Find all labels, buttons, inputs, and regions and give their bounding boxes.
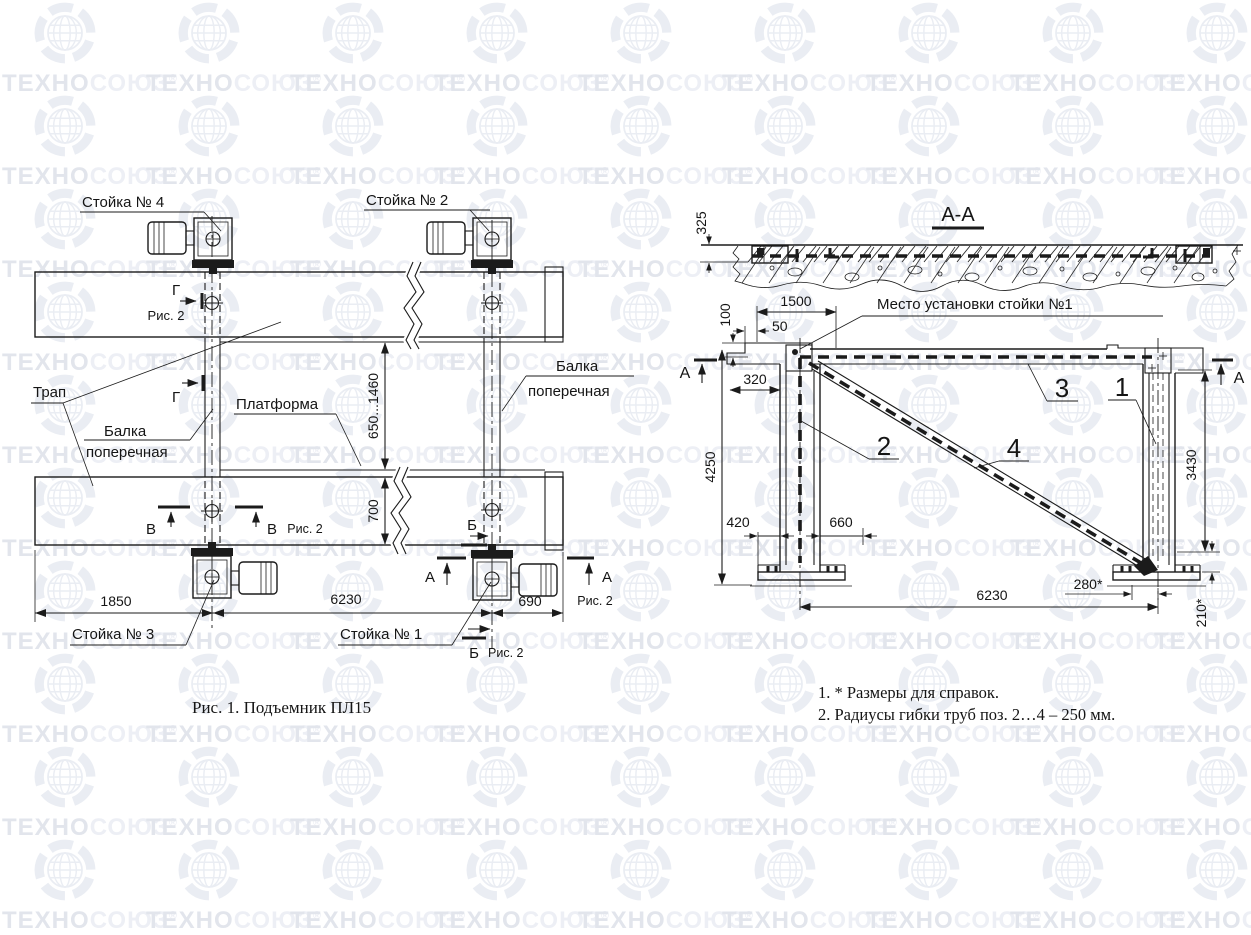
- label-install-place: Место установки стойки №1: [877, 296, 1073, 313]
- dim-center-span: 6230: [330, 591, 361, 607]
- watermark-globe-icon: [752, 0, 818, 66]
- dim-3430: 3430: [1183, 449, 1199, 480]
- dim-6230: 6230: [976, 587, 1007, 603]
- label-ramp: Трап: [33, 384, 66, 401]
- note-line-2: 2. Радиусы гибки труб поз. 2…4 – 250 мм.: [818, 704, 1115, 726]
- fig2-slab-section: А-А 325: [693, 204, 1243, 292]
- section-ref-v: Рис. 2: [287, 522, 323, 536]
- watermark-globe-icon: [608, 744, 674, 810]
- watermark-globe-icon: [1040, 744, 1106, 810]
- watermark-globe-icon: [320, 837, 386, 903]
- label-stand3: Стойка № 3: [72, 626, 154, 643]
- watermark-globe-icon: [32, 93, 98, 159]
- fig1-section-markers: Г Г Рис. 2 В В Рис. 2 Б Б Рис. 2 А А Рис…: [146, 282, 613, 662]
- watermark-globe-icon: [464, 0, 530, 66]
- watermark-text: ТЕХНОСОЮЗ®: [1154, 907, 1251, 935]
- section-ref-b: Рис. 2: [488, 646, 524, 660]
- dim-660: 660: [829, 514, 853, 530]
- watermark-globe-icon: [32, 744, 98, 810]
- watermark-globe-icon: [1184, 93, 1250, 159]
- watermark-globe-icon: [608, 0, 674, 66]
- dim-ramp-width: 700: [365, 499, 381, 523]
- dim-320: 320: [743, 371, 767, 387]
- figure-1-caption: Рис. 1. Подъемник ПЛ15: [192, 698, 371, 717]
- drawing-notes: 1. * Размеры для справок. 2. Радиусы гиб…: [818, 682, 1115, 726]
- pos-4: 4: [1007, 433, 1021, 463]
- watermark-globe-icon: [464, 93, 530, 159]
- section-letter-v2: В: [267, 521, 277, 538]
- section-ref-g: Рис. 2: [148, 308, 185, 323]
- watermark-globe-icon: [464, 744, 530, 810]
- label-stand4: Стойка № 4: [82, 194, 164, 211]
- section-letter-g1: Г: [172, 282, 180, 299]
- dim-100: 100: [717, 303, 733, 327]
- label-crossbeam-left-1: Балка: [104, 423, 147, 440]
- watermark-globe-icon: [176, 0, 242, 66]
- dim-280: 280*: [1074, 576, 1103, 592]
- watermark-globe-icon: [1040, 0, 1106, 66]
- watermark-globe-icon: [176, 837, 242, 903]
- fig1-labels: Стойка № 4 Стойка № 2 Стойка № 3 Стойка …: [31, 192, 634, 645]
- watermark-globe-icon: [1184, 0, 1250, 66]
- watermark-globe-icon: [896, 837, 962, 903]
- watermark-globe-icon: [896, 0, 962, 66]
- dim-left-span: 1850: [100, 593, 131, 609]
- watermark-globe-icon: [464, 837, 530, 903]
- section-letter-v1: В: [146, 521, 156, 538]
- watermark-globe-icon: [608, 93, 674, 159]
- watermark-globe-icon: [896, 93, 962, 159]
- watermark-globe-icon: [752, 837, 818, 903]
- fig2-frame: [727, 338, 1206, 610]
- note-line-1: 1. * Размеры для справок.: [818, 682, 1115, 704]
- fig2-title: А-А: [941, 204, 975, 226]
- section-letter-b1: Б: [467, 517, 477, 534]
- watermark-globe-icon: [752, 93, 818, 159]
- dim-210: 210*: [1193, 598, 1209, 627]
- section-ref-a: Рис. 2: [577, 594, 613, 608]
- watermark-globe-icon: [32, 837, 98, 903]
- pos-3: 3: [1055, 373, 1069, 403]
- channel-hatch: [748, 246, 1212, 262]
- label-stand1: Стойка № 1: [340, 626, 422, 643]
- label-stand2: Стойка № 2: [366, 192, 448, 209]
- dim-325: 325: [693, 211, 709, 235]
- section-letter-g2: Г: [172, 389, 180, 406]
- dim-4250: 4250: [702, 451, 718, 482]
- watermark-globe-icon: [176, 744, 242, 810]
- watermark-globe-icon: [1184, 651, 1250, 717]
- watermark-globe-icon: [320, 744, 386, 810]
- dim-right-span: 690: [518, 593, 542, 609]
- watermark-globe-icon: [1040, 93, 1106, 159]
- label-crossbeam-left-2: поперечная: [86, 444, 168, 461]
- dim-platform-gap: 650...1460: [365, 373, 381, 439]
- watermark-globe-icon: [320, 93, 386, 159]
- watermark-globe-icon: [176, 93, 242, 159]
- figure-2-section-a-a: А-А 325: [678, 195, 1245, 655]
- fig1-cross-beams: [205, 216, 500, 648]
- watermark-globe-icon: [32, 0, 98, 66]
- dim-1500: 1500: [780, 293, 811, 309]
- dim-50: 50: [772, 318, 788, 334]
- section-letter-a2: А: [602, 569, 612, 586]
- watermark-globe-icon: [1184, 744, 1250, 810]
- fig1-break-lines: [391, 262, 424, 554]
- section-letter-a-left: А: [680, 365, 691, 382]
- section-letter-b2: Б: [469, 645, 479, 662]
- pos-1: 1: [1115, 372, 1129, 402]
- dim-420: 420: [726, 514, 750, 530]
- label-crossbeam-right-1: Балка: [556, 358, 599, 375]
- watermark-globe-icon: [320, 0, 386, 66]
- watermark-globe-icon: [1184, 837, 1250, 903]
- label-crossbeam-right-2: поперечная: [528, 383, 610, 400]
- fig2-install-label: Место установки стойки №1: [800, 296, 1163, 349]
- watermark-globe-icon: [752, 651, 818, 717]
- pos-2: 2: [877, 431, 891, 461]
- fig1-drive-motors: [148, 218, 557, 600]
- figure-1-lift-plan: Г Г Рис. 2 В В Рис. 2 Б Б Рис. 2 А А Рис…: [28, 183, 690, 725]
- section-letter-a-right: А: [1234, 370, 1245, 387]
- watermark-globe-icon: [1040, 837, 1106, 903]
- watermark-globe-icon: [608, 837, 674, 903]
- fig2-position-numbers: 3 1 2 4: [801, 364, 1156, 468]
- label-platform: Платформа: [236, 396, 319, 413]
- watermark-globe-icon: [896, 744, 962, 810]
- section-letter-a1: А: [425, 569, 435, 586]
- watermark-globe-icon: [752, 744, 818, 810]
